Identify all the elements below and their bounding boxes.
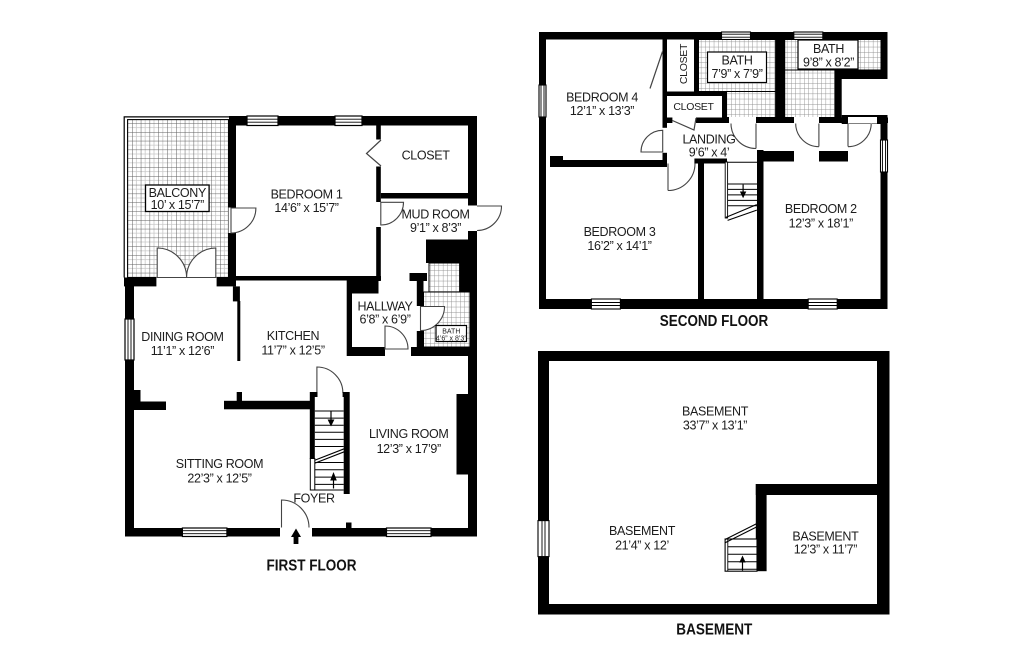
svg-text:SITTING ROOM: SITTING ROOM [176, 457, 263, 471]
svg-text:BATH: BATH [721, 54, 752, 68]
svg-text:7’9” x 7’9”: 7’9” x 7’9” [711, 67, 762, 81]
svg-text:BASEMENT: BASEMENT [676, 622, 752, 639]
svg-text:12’3” x 11’7”: 12’3” x 11’7” [794, 543, 857, 557]
svg-text:MUD ROOM: MUD ROOM [401, 208, 469, 222]
svg-text:BASEMENT: BASEMENT [682, 404, 749, 418]
svg-text:BEDROOM 1: BEDROOM 1 [271, 188, 343, 202]
svg-text:FOYER: FOYER [293, 492, 335, 506]
svg-text:21’4” x 12’: 21’4” x 12’ [615, 539, 669, 553]
svg-text:HALLWAY: HALLWAY [358, 300, 414, 314]
svg-text:CLOSET: CLOSET [673, 101, 714, 113]
svg-text:14’6” x 15’7”: 14’6” x 15’7” [274, 201, 338, 215]
svg-text:6’8” x 6’9”: 6’8” x 6’9” [359, 313, 410, 327]
svg-text:BATH: BATH [813, 42, 844, 56]
svg-text:12’3” x 17’9”: 12’3” x 17’9” [377, 442, 441, 456]
svg-text:DINING ROOM: DINING ROOM [141, 330, 223, 344]
svg-text:BASEMENT: BASEMENT [792, 529, 859, 543]
svg-text:22’3” x 12’5”: 22’3” x 12’5” [187, 472, 251, 486]
svg-text:SECOND FLOOR: SECOND FLOOR [660, 313, 769, 330]
svg-text:33’7” x 13’1”: 33’7” x 13’1” [683, 419, 747, 433]
svg-text:16’2” x 14’1”: 16’2” x 14’1” [587, 239, 651, 253]
svg-text:10’ x 15’7”: 10’ x 15’7” [151, 198, 205, 212]
svg-text:11’1” x 12’6”: 11’1” x 12’6” [151, 344, 214, 358]
svg-text:BASEMENT: BASEMENT [609, 524, 676, 538]
svg-text:FIRST FLOOR: FIRST FLOOR [267, 558, 357, 575]
svg-text:CLOSET: CLOSET [678, 43, 690, 84]
svg-text:KITCHEN: KITCHEN [267, 329, 320, 343]
svg-text:4’6” x 8’3”: 4’6” x 8’3” [436, 336, 467, 343]
svg-text:CLOSET: CLOSET [402, 149, 451, 163]
svg-text:BEDROOM 4: BEDROOM 4 [566, 91, 638, 105]
svg-text:LANDING: LANDING [682, 133, 735, 147]
svg-text:12’3” x 18’1”: 12’3” x 18’1” [789, 217, 853, 231]
svg-text:9’6” x 4’: 9’6” x 4’ [689, 146, 730, 160]
svg-text:11’7” x 12’5”: 11’7” x 12’5” [261, 344, 324, 358]
svg-text:BATH: BATH [442, 329, 460, 336]
svg-text:LIVING ROOM: LIVING ROOM [369, 427, 449, 441]
svg-text:BEDROOM 2: BEDROOM 2 [785, 202, 857, 216]
svg-text:9’1” x 8’3”: 9’1” x 8’3” [410, 221, 461, 235]
svg-text:12’1” x 13’3”: 12’1” x 13’3” [570, 104, 634, 118]
svg-text:BEDROOM 3: BEDROOM 3 [584, 225, 656, 239]
svg-text:9’8” x 8’2”: 9’8” x 8’2” [803, 56, 854, 70]
